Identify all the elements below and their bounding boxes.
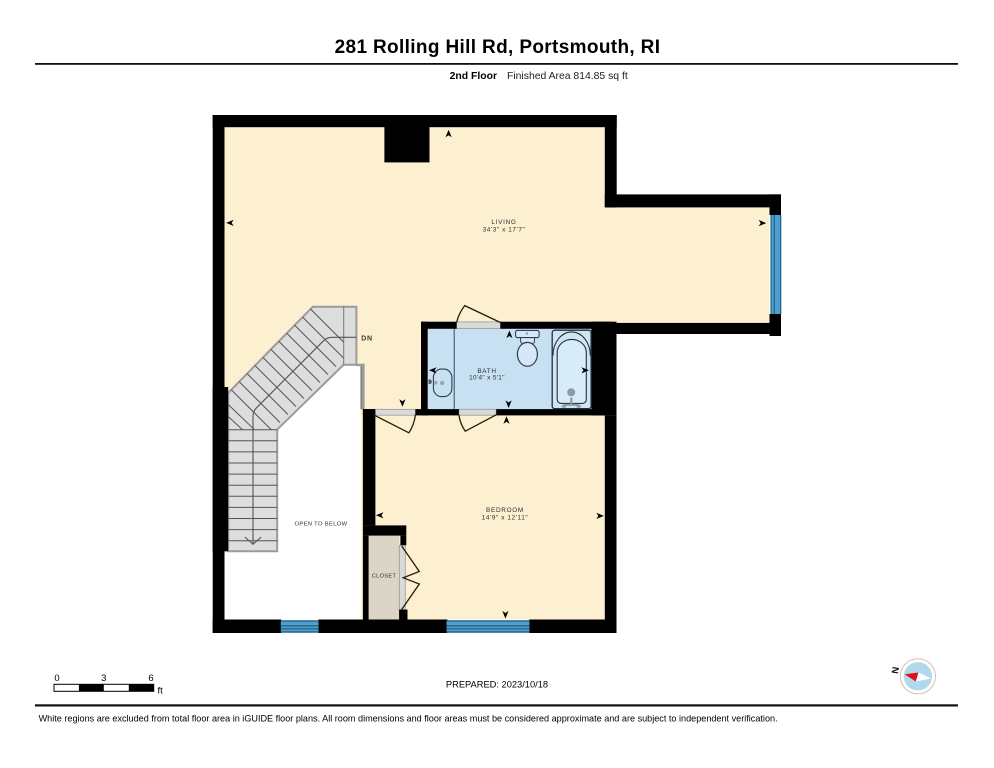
svg-text:White regions are excluded fro: White regions are excluded from total fl… <box>39 714 778 724</box>
svg-text:DN: DN <box>361 335 372 342</box>
svg-text:LIVING: LIVING <box>491 219 516 226</box>
svg-text:3: 3 <box>101 673 106 684</box>
svg-text:2nd Floor: 2nd Floor <box>450 71 497 82</box>
svg-text:ft: ft <box>158 686 164 697</box>
svg-text:PREPARED: 2023/10/18: PREPARED: 2023/10/18 <box>446 680 548 690</box>
svg-text:Finished Area 814.85 sq ft: Finished Area 814.85 sq ft <box>507 71 628 82</box>
svg-text:OPEN TO BELOW: OPEN TO BELOW <box>295 522 348 528</box>
svg-text:281 Rolling Hill Rd, Portsmout: 281 Rolling Hill Rd, Portsmouth, RI <box>335 37 661 58</box>
svg-text:6: 6 <box>148 673 153 684</box>
svg-text:BEDROOM: BEDROOM <box>486 507 524 514</box>
svg-text:0: 0 <box>54 673 59 684</box>
svg-text:10'4" x 5'1": 10'4" x 5'1" <box>469 375 505 382</box>
svg-text:CLOSET: CLOSET <box>372 574 397 580</box>
svg-text:34'3" x 17'7": 34'3" x 17'7" <box>483 227 526 234</box>
svg-text:14'9" x 12'11": 14'9" x 12'11" <box>482 515 529 522</box>
